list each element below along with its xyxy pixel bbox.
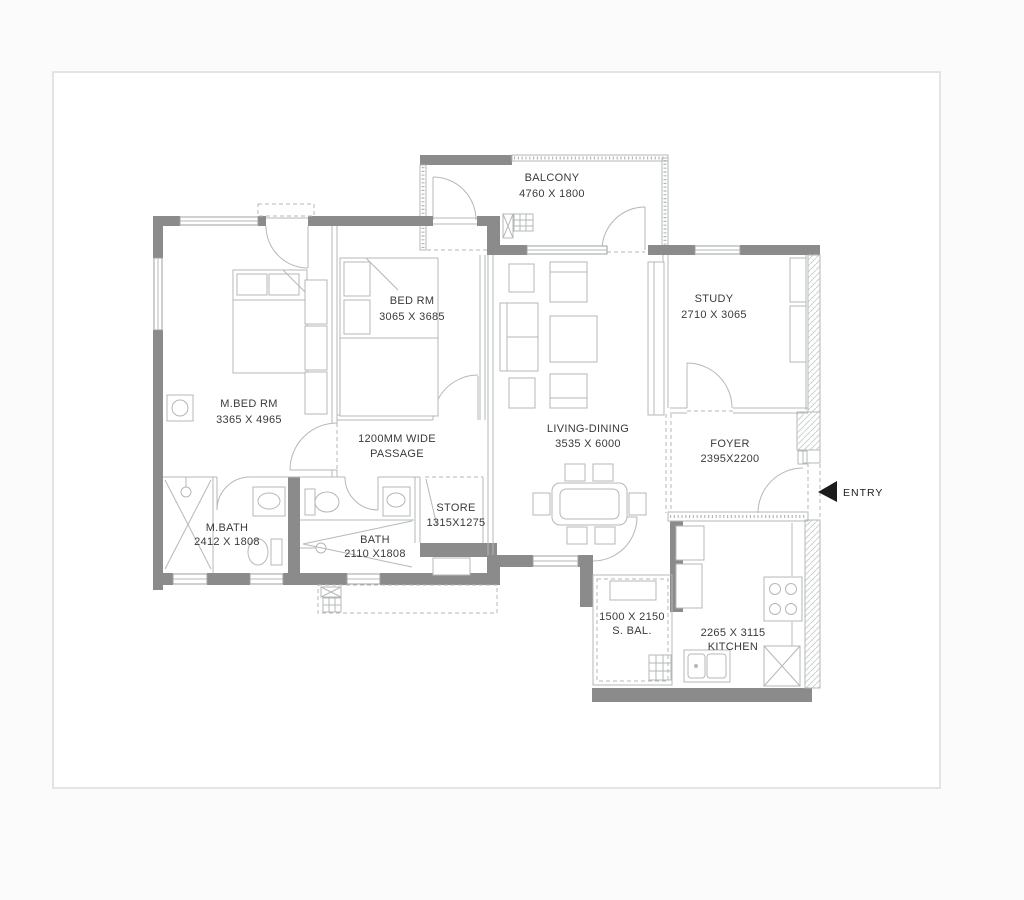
armchair: [550, 374, 587, 408]
study-shelf: [790, 258, 806, 362]
room-dimensions: 2710 X 3065: [681, 309, 747, 321]
room-name: M.BED RM: [220, 398, 277, 410]
room-dimensions: 3535 X 6000: [555, 438, 621, 450]
side-table: [509, 264, 534, 292]
floor-plan: BALCONY 4760 X 1800 BED RM 3065 X 3685 S…: [0, 0, 1024, 900]
tv-unit: [648, 262, 664, 415]
master-bed-side-table: [167, 395, 193, 421]
dining-table: [552, 483, 627, 525]
room-dimensions: 1315X1275: [427, 517, 486, 529]
room-name: FOYER: [710, 438, 749, 450]
room-dimensions: 3065 X 3685: [379, 311, 445, 323]
room-dimensions: 2265 X 3115: [701, 627, 766, 639]
toilet: [305, 489, 315, 515]
room-name-line2: PASSAGE: [370, 448, 424, 460]
floor-plan-page: BALCONY 4760 X 1800 BED RM 3065 X 3685 S…: [0, 0, 1024, 900]
kitchen-counter: [676, 564, 702, 608]
room-name: STUDY: [695, 293, 734, 305]
room-dimensions: 4760 X 1800: [519, 188, 585, 200]
room-dimensions: 2412 X 1808: [194, 536, 260, 548]
bed-room-bed: [340, 258, 438, 416]
master-bed-wardrobe: [305, 280, 327, 414]
room-name: M.BATH: [206, 522, 249, 534]
room-dimensions: 1500 X 2150: [599, 611, 665, 623]
coffee-table: [550, 316, 597, 362]
room-name: BED RM: [390, 295, 435, 307]
entry-label: ENTRY: [843, 487, 883, 499]
sofa: [500, 303, 538, 371]
room-name: S. BAL.: [612, 625, 651, 637]
room-name: BATH: [360, 534, 390, 546]
stove: [764, 577, 802, 621]
room-name: LIVING-DINING: [547, 423, 629, 435]
room-dimensions: 3365 X 4965: [216, 414, 282, 426]
room-dimensions: 2110 X1808: [344, 548, 406, 560]
toilet: [271, 539, 282, 565]
refrigerator: [676, 526, 704, 560]
room-dimensions: 2395X2200: [701, 453, 760, 465]
washing-machine: [610, 581, 656, 600]
armchair: [550, 262, 587, 302]
side-table: [509, 378, 535, 408]
master-bed: [233, 270, 307, 373]
room-name: BALCONY: [525, 172, 580, 184]
room-name: STORE: [436, 502, 475, 514]
room-name: KITCHEN: [708, 641, 758, 653]
room-name: 1200MM WIDE: [358, 433, 436, 445]
